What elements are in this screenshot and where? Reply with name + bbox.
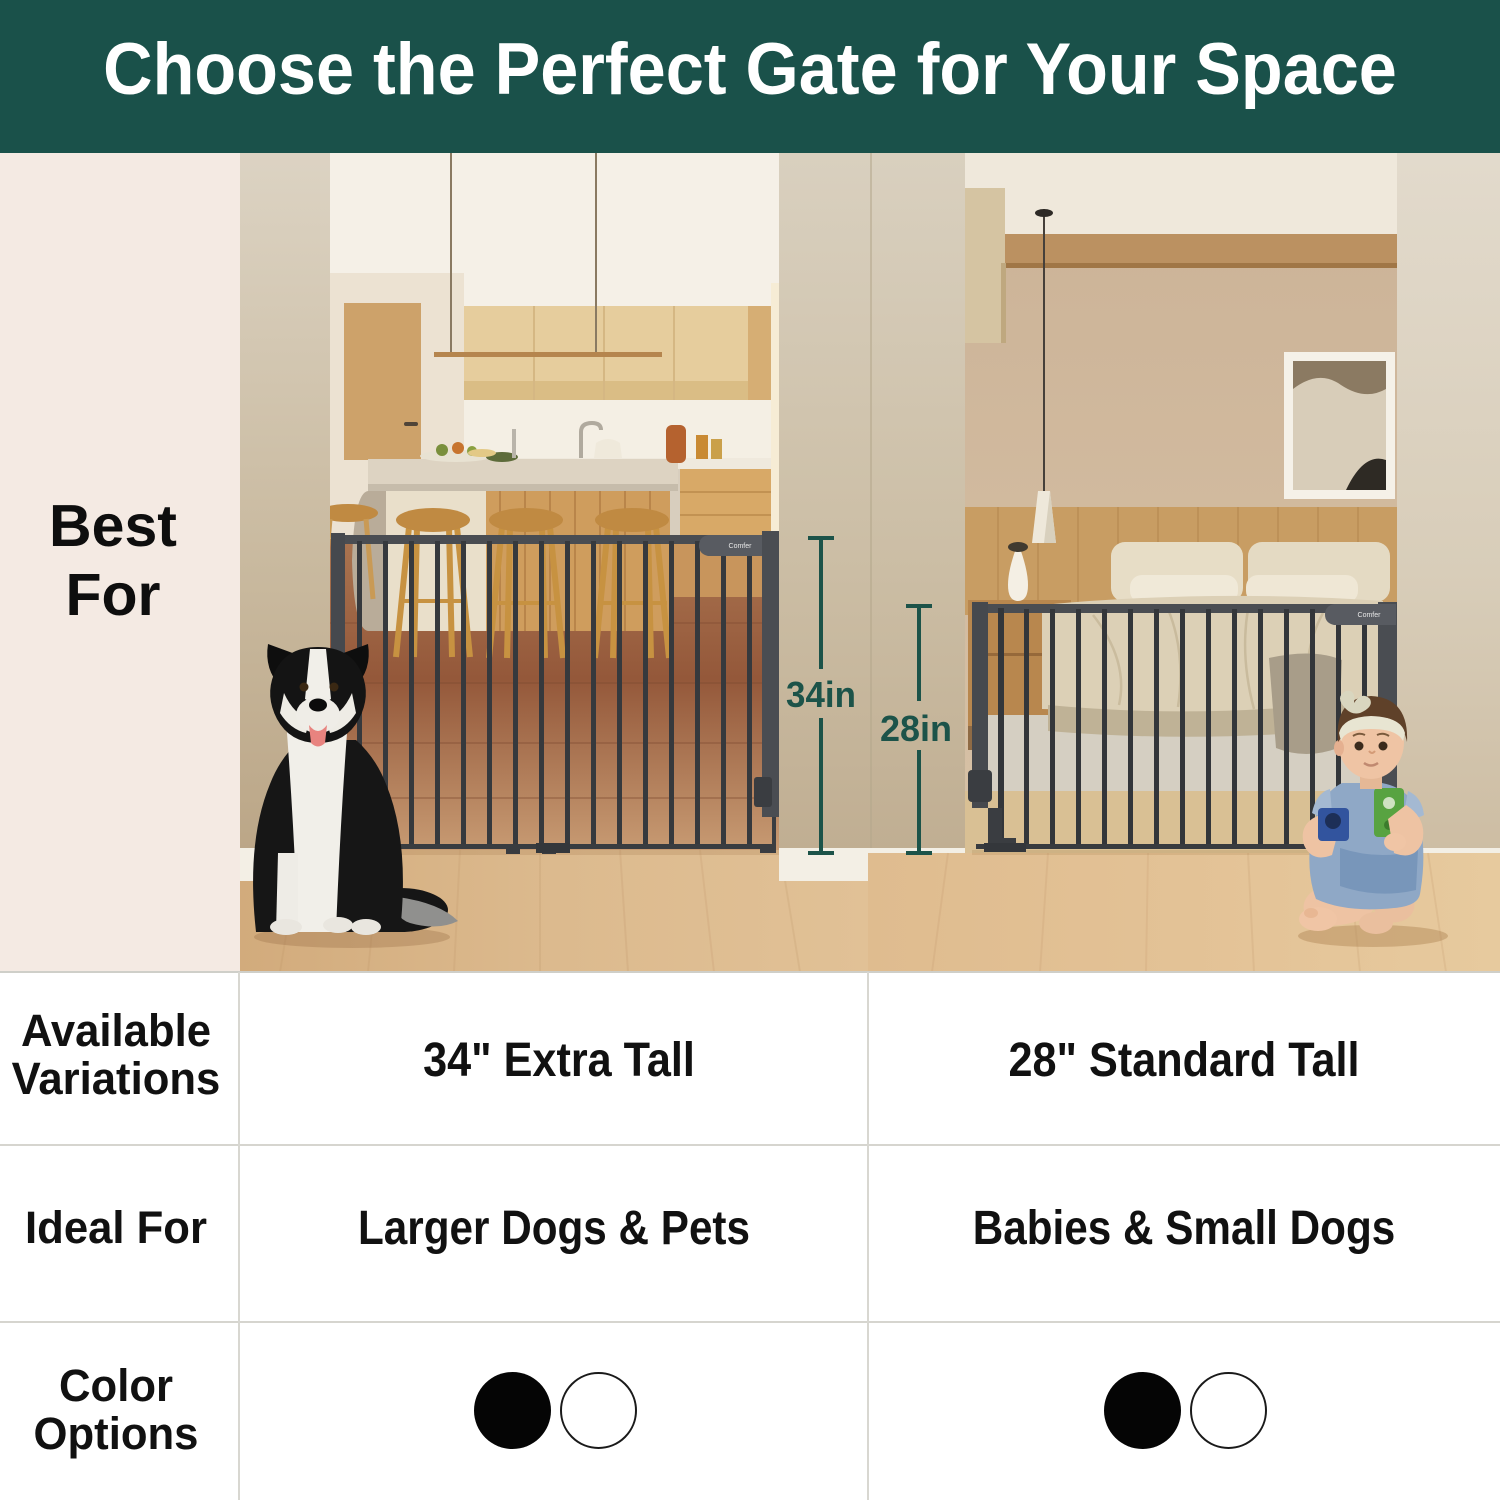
svg-text:34in: 34in <box>786 675 856 716</box>
svg-text:Comfer: Comfer <box>1358 612 1382 619</box>
svg-text:28in: 28in <box>880 708 952 749</box>
svg-text:Comfer: Comfer <box>729 543 753 550</box>
